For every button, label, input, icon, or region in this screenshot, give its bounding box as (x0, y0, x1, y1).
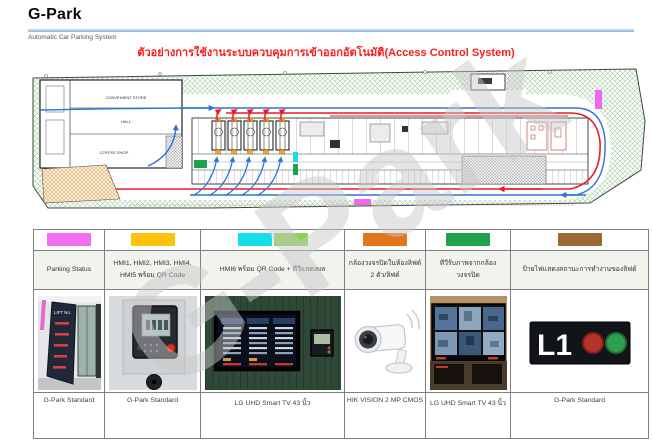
orange-swatch (363, 233, 407, 246)
caption-status-board: G-Park Standard (34, 393, 105, 439)
lift-board-title: LIFT No. (54, 310, 71, 315)
legend-label-hmi: HMI1, HMI2, HMI3, HMI4, HMI5 พร้อม QR Co… (105, 251, 201, 290)
parking-status-marker-bottom (354, 199, 371, 205)
photo-cell-hmi-panel (105, 290, 201, 393)
l1-sign-text: L1 (537, 329, 572, 362)
legend-photo-row: LIFT No. (34, 290, 649, 393)
parking-status-board-photo: LIFT No. (38, 296, 101, 390)
yellow-swatch (131, 233, 175, 246)
parking-status-marker-right (595, 90, 602, 109)
ramp-area (42, 165, 120, 203)
tv-display-marker (194, 160, 207, 168)
legend-label-tv: ทีวีรับภาพจากกล้องวงจรปิด (426, 251, 511, 290)
legend-swatch-cell-cctv (345, 230, 426, 251)
brown-swatch (558, 233, 602, 246)
hmi-panel-photo (109, 296, 197, 390)
photo-cell-l1-sign: L1 (511, 290, 649, 393)
lift-module (276, 118, 289, 155)
legend-swatch-cell-hmi6 (201, 230, 345, 251)
legend-label-row: Parking Status HMI1, HMI2, HMI3, HMI4, H… (34, 251, 649, 290)
page-title: ตัวอย่างการใช้งานระบบควบคุมการเข้าออกอัต… (0, 43, 652, 61)
label-coffee-shop: COFFEE SHOP (100, 150, 129, 155)
legend-label-sign: ป้ายไฟแสดงสถานะการทำงานของลิฟต์ (511, 251, 649, 290)
legend-swatch-cell-tv (426, 230, 511, 251)
legend-label-cctv: กล้องวงจรปิดในห้องลิฟต์ 2 ตัว/ลิฟต์ (345, 251, 426, 290)
cctv-camera-photo (349, 296, 422, 390)
label-convenient-store: CONVENIENT STORE (106, 95, 147, 100)
green-swatch (274, 233, 308, 246)
lift-lobby-tv-photo (205, 296, 341, 390)
legend-swatch-cell-parking-status (34, 230, 105, 251)
label-hall: HALL (121, 119, 132, 124)
cyan-swatch (238, 233, 272, 246)
lift-module (228, 118, 241, 155)
caption-hmi-panel: G-Park Standard (105, 393, 201, 439)
lift-status-sign-photo: L1 (515, 296, 645, 390)
floor-plan-svg: CONVENIENT STORE HALL COFFEE SHOP (30, 66, 650, 222)
lift-module (260, 118, 273, 155)
photo-cell-camera (345, 290, 426, 393)
legend-swatch-cell-hmi (105, 230, 201, 251)
lift-bank (212, 118, 289, 155)
dark-green-swatch (446, 233, 490, 246)
floor-plan: CONVENIENT STORE HALL COFFEE SHOP (30, 66, 650, 222)
caption-l1-sign: G-Park Standard (511, 393, 649, 439)
equipment-legend-table: Parking Status HMI1, HMI2, HMI3, HMI4, H… (33, 229, 649, 439)
photo-cell-lobby-tv (201, 290, 345, 393)
legend-swatch-row (34, 230, 649, 251)
legend-label-hmi6: HMI6 พร้อม QR Code + ทีวีแสดงผล (201, 251, 345, 290)
caption-camera: HIK VISION 2 MP CMOS (345, 393, 426, 439)
legend-caption-row: G-Park Standard G-Park Standard LG UHD S… (34, 393, 649, 439)
cctv-tv-marker (293, 164, 298, 175)
cctv-camera-marker (293, 152, 298, 162)
photo-cell-status-board: LIFT No. (34, 290, 105, 393)
lift-module (212, 118, 225, 155)
retail-building: CONVENIENT STORE HALL COFFEE SHOP (40, 80, 182, 168)
entry-kiosk (471, 74, 505, 90)
lift-module (244, 118, 257, 155)
legend-label-parking-status: Parking Status (34, 251, 105, 290)
photo-cell-cctv-tv (426, 290, 511, 393)
app-brand: G-Park (28, 6, 82, 24)
app-subtitle: Automatic Car Parking System (28, 34, 117, 41)
header-divider (28, 29, 634, 32)
caption-lobby-tv: LG UHD Smart TV 43 นิ้ว (201, 393, 345, 439)
caption-cctv-tv: LG UHD Smart TV 43 นิ้ว (426, 393, 511, 439)
magenta-swatch (47, 233, 91, 246)
cctv-monitor-photo (430, 296, 507, 390)
legend-swatch-cell-sign (511, 230, 649, 251)
